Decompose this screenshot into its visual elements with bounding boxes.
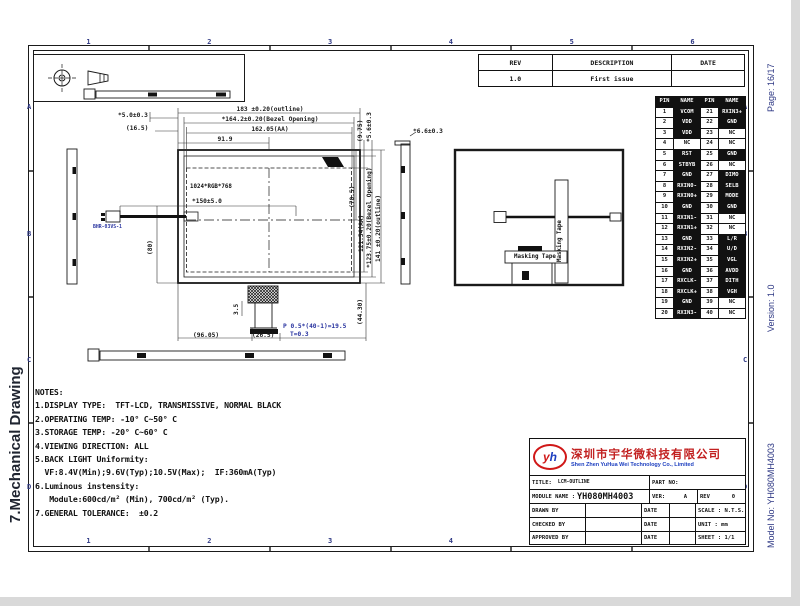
note-line: 6.Luminous instensity: (35, 480, 375, 493)
pin-name-cell: GND (674, 202, 701, 213)
checked-date-label: DATE (642, 518, 670, 531)
pin-number-cell: 17 (656, 277, 674, 288)
pin-name-cell: GND (674, 298, 701, 309)
pin-table-header: NAME (719, 97, 746, 108)
dim-tab-vert: *5.6±0.3 (366, 112, 373, 142)
frame-column-label-top: 6 (690, 38, 694, 46)
pin-name-cell: VDD (674, 118, 701, 129)
pin-name-cell: RXIN1+ (674, 224, 701, 235)
pin-number-cell: 20 (656, 308, 674, 319)
pin-number-cell: 10 (656, 202, 674, 213)
pin-number-cell: 2 (656, 118, 674, 129)
pin-number-cell: 7 (656, 171, 674, 182)
dim-edge-offset: (16.5) (126, 125, 148, 132)
pin-number-cell: 19 (656, 298, 674, 309)
drawn-date-label: DATE (642, 504, 670, 517)
drawn-by-value (586, 504, 642, 517)
rev-table-cell: First issue (552, 71, 671, 87)
pin-name-cell: VGL (719, 255, 746, 266)
pin-number-cell: 38 (701, 287, 719, 298)
rev-table-cell (672, 71, 745, 87)
pin-number-cell: 25 (701, 149, 719, 160)
dim-bezel-height: *123.75±0.20(Bezel Opening) (366, 167, 373, 268)
pin-number-cell: 3 (656, 128, 674, 139)
pin-name-cell: RXIN0+ (674, 192, 701, 203)
frame-column-label-top: 2 (207, 38, 211, 46)
frame-row-label-left: B (27, 230, 31, 238)
pin-name-cell: NC (719, 139, 746, 150)
note-line: 2.OPERATING TEMP: -10° C~50° C (35, 413, 375, 426)
rev-table-header: DATE (672, 55, 745, 71)
version-vertical: Version: 1.0 (766, 284, 776, 332)
dim-fpc-pitch: P 0.5*(40-1)=19.5 (283, 323, 346, 330)
note-line: 4.VIEWING DIRECTION: ALL (35, 440, 375, 453)
rev-table-cell: 1.0 (479, 71, 553, 87)
frame-row-label-left: A (27, 103, 31, 111)
pin-name-cell: VDD (674, 128, 701, 139)
pin-name-cell: GND (674, 266, 701, 277)
pin-name-cell: GND (719, 202, 746, 213)
approved-date-label: DATE (642, 532, 670, 544)
pin-number-cell: 33 (701, 234, 719, 245)
pin-name-cell: NC (719, 128, 746, 139)
note-line: 5.BACK LIGHT Uniformity: (35, 453, 375, 466)
unit-cell: UNIT : mm (696, 518, 745, 531)
pin-name-cell: MODE (719, 192, 746, 203)
pin-name-cell: GND (674, 171, 701, 182)
pin-name-cell: NC (719, 298, 746, 309)
pin-name-cell: RXIN3+ (719, 107, 746, 118)
frame-column-label-bottom: 4 (449, 537, 453, 545)
pin-table-header: PIN (701, 97, 719, 108)
pin-name-cell: STBYB (674, 160, 701, 171)
pin-name-cell: DITH (719, 277, 746, 288)
rev-cell: REV0 (698, 490, 745, 503)
model-no-vertical: Model No: YH080MH4003 (766, 443, 776, 548)
frame-column-label-bottom: 2 (207, 537, 211, 545)
pin-number-cell: 18 (656, 287, 674, 298)
checked-date-value (670, 518, 696, 531)
pin-name-cell: VCOM (674, 107, 701, 118)
pin-name-cell: NC (719, 224, 746, 235)
pin-number-cell: 11 (656, 213, 674, 224)
drawn-date-value (670, 504, 696, 517)
pin-name-cell: NC (719, 160, 746, 171)
frame-column-label-top: 5 (570, 38, 574, 46)
module-name-value: YH080MH4003 (577, 492, 633, 502)
frame-column-label-top: 1 (86, 38, 90, 46)
part-no-cell: PART NO: (650, 476, 745, 489)
pin-number-cell: 36 (701, 266, 719, 277)
rev-table-header: REV (479, 55, 553, 71)
pin-number-cell: 27 (701, 171, 719, 182)
pin-name-cell: L/R (719, 234, 746, 245)
pin-number-cell: 32 (701, 224, 719, 235)
pin-number-cell: 5 (656, 149, 674, 160)
pin-number-cell: 39 (701, 298, 719, 309)
frame-column-label-top: 4 (449, 38, 453, 46)
checked-by-value (586, 518, 642, 531)
pin-name-cell: GND (674, 234, 701, 245)
dim-cable-drop: (80) (147, 240, 154, 255)
pin-number-cell: 28 (701, 181, 719, 192)
pin-number-cell: 30 (701, 202, 719, 213)
note-line: Module:600cd/m² (Min), 700cd/m² (Typ). (35, 493, 375, 506)
pin-name-cell: RXCLK+ (674, 287, 701, 298)
drawn-by-label: DRAWN BY (530, 504, 586, 517)
pin-name-cell: GND (719, 149, 746, 160)
pin-name-cell: NC (719, 213, 746, 224)
title-block-logo-row: yh 深圳市宇华微科技有限公司 Shen Zhen YuHua Wei Tech… (530, 439, 745, 475)
revision-table: REVDESCRIPTIONDATE1.0First issue (478, 54, 745, 87)
pin-number-cell: 15 (656, 255, 674, 266)
pin-number-cell: 34 (701, 245, 719, 256)
masking-tape-vertical-label: Masking Tape (557, 220, 563, 262)
pin-table-header: NAME (674, 97, 701, 108)
connector-part-label: BHR-03VS-1 (93, 225, 122, 230)
frame-column-label-top: 3 (328, 38, 332, 46)
pin-number-cell: 22 (701, 118, 719, 129)
module-name-cell: MODULE NAME :YH080MH4003 (530, 490, 650, 503)
dim-half-width: 91.9 (200, 136, 250, 143)
frame-row-label-right: C (743, 356, 747, 364)
dim-gap-top: (9.75) (357, 120, 364, 142)
pin-table-header: PIN (656, 97, 674, 108)
pin-number-cell: 12 (656, 224, 674, 235)
page-bottom-margin (0, 597, 800, 606)
pin-number-cell: 21 (701, 107, 719, 118)
approved-by-label: APPROVED BY (530, 532, 586, 544)
company-name-en: Shen Zhen YuHua Wei Technology Co., Limi… (571, 462, 721, 468)
pin-number-cell: 40 (701, 308, 719, 319)
section-title-vertical: 7.Mechanical Drawing (7, 366, 24, 523)
notes-block: NOTES: 1.DISPLAY TYPE: TFT-LCD, TRANSMIS… (35, 386, 375, 520)
dim-cable-length: *150±5.0 (192, 198, 222, 205)
pin-name-cell: NC (719, 308, 746, 319)
note-line: 1.DISPLAY TYPE: TFT-LCD, TRANSMISSIVE, N… (35, 399, 375, 412)
pin-number-cell: 26 (701, 160, 719, 171)
pin-name-cell: GND (719, 118, 746, 129)
dim-fpc-thickness: T=0.3 (290, 331, 309, 338)
pin-name-cell: U/D (719, 245, 746, 256)
checked-by-label: CHECKED BY (530, 518, 586, 531)
pin-number-cell: 4 (656, 139, 674, 150)
pin-number-cell: 29 (701, 192, 719, 203)
dim-tab-height: *5.0±0.3 (118, 112, 148, 119)
dim-thickness: *6.6±0.3 (413, 128, 443, 135)
pin-number-cell: 37 (701, 277, 719, 288)
pin-name-cell: RXIN0- (674, 181, 701, 192)
scale-cell: SCALE : N.T.S. (696, 504, 745, 517)
resolution-label: 1024*RGB*768 (190, 184, 232, 190)
pin-number-cell: 13 (656, 234, 674, 245)
dim-fpc-width: 3.5 (233, 304, 240, 315)
pin-name-cell: RXIN3- (674, 308, 701, 319)
page-right-margin (791, 0, 800, 606)
dim-cable-pos: (70.5) (349, 186, 356, 208)
frame-column-label-bottom: 3 (328, 537, 332, 545)
rev-table-header: DESCRIPTION (552, 55, 671, 71)
dim-outline-width: 183 ±0.20(outline) (200, 106, 340, 113)
pin-number-cell: 1 (656, 107, 674, 118)
pin-assignment-table: PINNAMEPINNAME1VCOM21RXIN3+2VDD22GND3VDD… (655, 96, 746, 319)
dim-aa-width: 162.05(AA) (200, 126, 340, 133)
masking-tape-horizontal-label: Masking Tape (514, 254, 556, 260)
note-line: VF:8.4V(Min);9.6V(Typ);10.5V(Max); IF:36… (35, 466, 375, 479)
page-number-vertical: Page: 16/17 (766, 63, 776, 112)
pin-number-cell: 24 (701, 139, 719, 150)
title-block: yh 深圳市宇华微科技有限公司 Shen Zhen YuHua Wei Tech… (529, 438, 746, 545)
company-logo: yh (533, 444, 567, 470)
pin-number-cell: 9 (656, 192, 674, 203)
pin-number-cell: 14 (656, 245, 674, 256)
title-cell: TITLE:LCM-OUTLINE (530, 476, 650, 489)
pin-number-cell: 23 (701, 128, 719, 139)
dim-aa-height: 121.54(AA) (358, 215, 365, 252)
note-line: 7.GENERAL TOLERANCE: ±0.2 (35, 507, 375, 520)
approved-by-value (586, 532, 642, 544)
pin-name-cell: NC (674, 139, 701, 150)
notes-title: NOTES: (35, 386, 375, 399)
pin-name-cell: SELB (719, 181, 746, 192)
pin-name-cell: RXIN2- (674, 245, 701, 256)
dim-outline-height: 141 ±0.20(outline) (375, 195, 382, 262)
pin-name-cell: AVDD (719, 266, 746, 277)
company-name-cn: 深圳市宇华微科技有限公司 (571, 446, 721, 462)
dim-bezel-width: *164.2±0.20(Bezel Opening) (190, 116, 350, 123)
pin-name-cell: VGH (719, 287, 746, 298)
approved-date-value (670, 532, 696, 544)
dim-fpc-width2: (26.5) (252, 332, 274, 339)
pin-number-cell: 16 (656, 266, 674, 277)
pin-number-cell: 35 (701, 255, 719, 266)
pin-name-cell: RST (674, 149, 701, 160)
dim-fpc-length: (44.30) (357, 299, 364, 325)
sheet-cell: SHEET : 1/1 (696, 532, 745, 544)
mechanical-drawing-page: { "page": { "left_title": "7.Mechanical … (0, 0, 800, 606)
pin-name-cell: DIMO (719, 171, 746, 182)
note-line: 3.STORAGE TEMP: -20° C~60° C (35, 426, 375, 439)
pin-name-cell: RXIN1- (674, 213, 701, 224)
frame-row-label-left: C (27, 356, 31, 364)
frame-column-label-bottom: 1 (86, 537, 90, 545)
pin-number-cell: 31 (701, 213, 719, 224)
pin-number-cell: 8 (656, 181, 674, 192)
ver-cell: VER:A (650, 490, 698, 503)
frame-row-label-left: D (27, 483, 31, 491)
pin-name-cell: RXIN2+ (674, 255, 701, 266)
pin-number-cell: 6 (656, 160, 674, 171)
dim-fpc-offset: (96.05) (193, 332, 219, 339)
pin-name-cell: RXCLK- (674, 277, 701, 288)
